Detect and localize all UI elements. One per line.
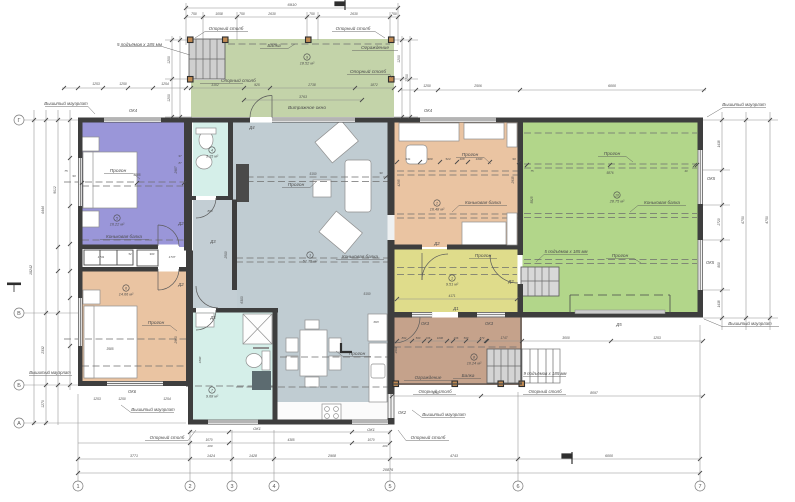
svg-text:524: 524: [445, 157, 450, 161]
svg-text:5 подъёмов x 185 мм: 5 подъёмов x 185 мм: [117, 42, 163, 47]
svg-text:6444: 6444: [41, 206, 45, 214]
svg-text:ОК6: ОК6: [128, 389, 137, 394]
svg-text:3: 3: [230, 484, 233, 490]
svg-text:Балка: Балка: [462, 373, 475, 378]
svg-text:8: 8: [473, 355, 475, 359]
svg-text:ОК1: ОК1: [367, 427, 375, 432]
svg-text:52: 52: [128, 252, 132, 256]
svg-text:Д3: Д3: [209, 239, 216, 244]
svg-text:Вышитый мауэрлат: Вышитый мауэрлат: [29, 370, 71, 375]
svg-text:51.75 м²: 51.75 м²: [303, 260, 318, 264]
svg-text:10.24 м²: 10.24 м²: [467, 362, 482, 366]
svg-text:Прогон: Прогон: [288, 182, 305, 188]
svg-text:925: 925: [254, 83, 260, 87]
svg-text:206: 206: [453, 336, 459, 340]
svg-text:1070: 1070: [205, 438, 212, 442]
svg-text:10: 10: [615, 193, 619, 197]
svg-text:1731: 1731: [98, 255, 105, 259]
svg-text:Д5: Д5: [615, 322, 622, 327]
svg-text:2987: 2987: [174, 166, 178, 174]
svg-text:1200: 1200: [167, 94, 171, 102]
svg-text:ОК2: ОК2: [398, 410, 407, 415]
svg-text:Ограждение: Ограждение: [415, 375, 442, 380]
svg-text:2: 2: [188, 484, 191, 490]
svg-text:3.15 м²: 3.15 м²: [206, 155, 219, 159]
svg-text:1250: 1250: [118, 397, 126, 401]
svg-text:1250: 1250: [119, 82, 127, 86]
svg-text:Опорный столб: Опорный столб: [221, 77, 256, 83]
svg-text:Коньковая балка: Коньковая балка: [465, 200, 501, 205]
svg-text:1253: 1253: [93, 397, 101, 401]
svg-text:7: 7: [698, 484, 701, 490]
svg-text:Коньковая балка: Коньковая балка: [644, 200, 680, 205]
svg-text:941: 941: [405, 157, 410, 161]
svg-text:4: 4: [272, 484, 275, 490]
svg-text:1200: 1200: [167, 56, 171, 64]
svg-text:6303: 6303: [240, 296, 244, 303]
svg-text:9: 9: [306, 55, 308, 59]
svg-text:200: 200: [381, 444, 387, 448]
svg-text:1254: 1254: [161, 82, 169, 86]
svg-text:750: 750: [309, 12, 315, 16]
svg-text:500: 500: [464, 336, 469, 340]
svg-text:Прогон: Прогон: [604, 151, 621, 157]
svg-text:В: В: [17, 311, 21, 317]
svg-text:2902: 2902: [394, 346, 398, 354]
svg-text:Опорный столб: Опорный столб: [150, 434, 185, 440]
svg-text:Опорный столб: Опорный столб: [411, 434, 446, 440]
svg-text:Коньковая балка: Коньковая балка: [106, 234, 142, 239]
svg-text:3: 3: [309, 253, 311, 257]
svg-text:97: 97: [178, 154, 182, 158]
svg-text:75: 75: [64, 169, 68, 173]
svg-text:873: 873: [480, 336, 485, 340]
svg-text:800: 800: [717, 262, 721, 268]
svg-text:4171: 4171: [448, 294, 455, 298]
svg-text:1253: 1253: [92, 82, 100, 86]
svg-text:3763: 3763: [299, 95, 307, 99]
svg-text:5: 5: [116, 216, 118, 220]
svg-text:2630: 2630: [349, 12, 358, 16]
svg-text:Прогон: Прогон: [110, 168, 127, 174]
svg-text:1: 1: [451, 276, 453, 280]
svg-text:Опорный столб: Опорный столб: [336, 25, 371, 31]
svg-text:4385: 4385: [287, 438, 294, 442]
svg-text:750: 750: [391, 12, 397, 16]
svg-text:1438: 1438: [717, 140, 721, 147]
svg-text:ОК3: ОК3: [421, 321, 430, 326]
svg-text:2630: 2630: [267, 12, 276, 16]
svg-text:2720: 2720: [717, 218, 721, 226]
svg-text:Вышитый мауэрлат: Вышитый мауэрлат: [422, 412, 466, 417]
svg-text:2935: 2935: [511, 176, 515, 184]
svg-text:6000: 6000: [608, 84, 616, 88]
svg-text:206: 206: [425, 336, 431, 340]
svg-text:Прогон: Прогон: [612, 253, 629, 259]
svg-text:75: 75: [244, 171, 248, 175]
svg-text:Д2: Д2: [507, 279, 514, 284]
svg-text:99: 99: [379, 171, 383, 175]
svg-text:16.22 м²: 16.22 м²: [110, 223, 125, 227]
svg-text:4: 4: [211, 148, 213, 152]
svg-text:900: 900: [150, 252, 155, 256]
svg-text:5 подъёмов x 185 мм: 5 подъёмов x 185 мм: [544, 249, 587, 254]
svg-text:1: 1: [76, 484, 79, 490]
svg-text:2908: 2908: [327, 454, 336, 458]
svg-text:1200: 1200: [397, 55, 401, 63]
svg-text:1800: 1800: [198, 356, 202, 363]
svg-text:Коньковая балка: Коньковая балка: [342, 254, 378, 259]
svg-text:1253: 1253: [653, 336, 661, 340]
svg-text:1058: 1058: [215, 12, 223, 16]
svg-text:1250: 1250: [423, 84, 431, 88]
svg-text:6750: 6750: [741, 216, 745, 224]
svg-text:3000: 3000: [562, 336, 570, 340]
svg-text:750: 750: [191, 12, 197, 16]
svg-text:5: 5: [388, 484, 391, 490]
svg-text:1424: 1424: [207, 454, 215, 458]
svg-text:1270: 1270: [41, 400, 45, 408]
svg-text:5150: 5150: [363, 292, 370, 296]
svg-text:49: 49: [684, 169, 688, 173]
svg-text:3771: 3771: [130, 454, 138, 458]
svg-text:3585: 3585: [106, 347, 113, 351]
svg-text:500: 500: [416, 336, 421, 340]
svg-text:2700: 2700: [405, 74, 409, 83]
svg-text:1254: 1254: [163, 397, 171, 401]
svg-text:Балка: Балка: [267, 43, 281, 49]
svg-text:ОК3: ОК3: [485, 321, 494, 326]
svg-text:ОК4: ОК4: [424, 108, 433, 113]
svg-text:18.52 м²: 18.52 м²: [300, 62, 315, 66]
svg-text:2332: 2332: [41, 346, 45, 355]
svg-text:20876: 20876: [382, 468, 394, 472]
svg-text:1737: 1737: [169, 255, 176, 259]
svg-text:14.66 м²: 14.66 м²: [119, 293, 134, 297]
svg-text:Прогон: Прогон: [475, 253, 492, 259]
svg-text:1070: 1070: [367, 438, 374, 442]
svg-text:6910: 6910: [288, 2, 298, 7]
svg-text:800: 800: [207, 209, 212, 213]
svg-text:9 подъёмов x 185 мм: 9 подъёмов x 185 мм: [523, 371, 566, 376]
svg-text:2738: 2738: [307, 83, 316, 87]
svg-text:Опорный столб: Опорный столб: [350, 68, 386, 75]
svg-text:Прогон: Прогон: [148, 320, 165, 326]
svg-text:Д2: Д2: [177, 282, 184, 287]
svg-text:9.68 м²: 9.68 м²: [206, 395, 219, 399]
svg-text:10242: 10242: [29, 265, 33, 275]
svg-text:Вышитый мауэрлат: Вышитый мауэрлат: [44, 101, 88, 106]
svg-text:хол: хол: [372, 320, 378, 324]
svg-text:5150: 5150: [309, 172, 316, 176]
svg-text:99: 99: [72, 174, 76, 178]
svg-text:9.51 м²: 9.51 м²: [446, 283, 459, 287]
svg-text:900: 900: [427, 157, 432, 161]
svg-text:Ограждение: Ограждение: [361, 45, 389, 51]
svg-text:87: 87: [178, 161, 182, 165]
svg-text:Вышитый мауэрлат: Вышитый мауэрлат: [131, 407, 175, 412]
svg-text:Опорный столб: Опорный столб: [528, 389, 562, 394]
svg-text:4750: 4750: [765, 216, 769, 224]
svg-text:Д3: Д3: [209, 315, 216, 320]
svg-text:Г: Г: [18, 118, 21, 124]
svg-text:1872: 1872: [370, 83, 378, 87]
svg-text:2506: 2506: [473, 84, 482, 88]
svg-text:ОК5: ОК5: [707, 176, 716, 181]
svg-text:750: 750: [239, 12, 245, 16]
svg-text:4295: 4295: [397, 179, 401, 186]
svg-text:1747: 1747: [500, 336, 507, 340]
svg-text:Витражное окно: Витражное окно: [288, 105, 326, 111]
svg-text:Вышитый мауэрлат: Вышитый мауэрлат: [728, 321, 772, 326]
svg-text:ОК1: ОК1: [253, 426, 261, 431]
svg-text:6: 6: [516, 484, 519, 490]
svg-text:862: 862: [402, 336, 407, 340]
svg-text:Опорный столб: Опорный столб: [209, 25, 244, 31]
svg-text:4743: 4743: [450, 454, 458, 458]
svg-text:ОК5: ОК5: [706, 260, 715, 265]
svg-text:Д4: Д4: [248, 125, 255, 130]
svg-text:А: А: [17, 421, 21, 427]
svg-text:8097: 8097: [590, 391, 598, 395]
svg-text:9012: 9012: [53, 186, 57, 194]
svg-text:6: 6: [125, 286, 127, 290]
svg-text:200: 200: [206, 444, 212, 448]
svg-text:2: 2: [435, 201, 438, 205]
svg-text:1428: 1428: [249, 454, 257, 458]
svg-text:Вышитый мауэрлат: Вышитый мауэрлат: [722, 102, 766, 107]
svg-text:75: 75: [530, 169, 534, 173]
svg-text:Д2: Д2: [433, 241, 440, 246]
svg-text:5825: 5825: [530, 196, 534, 203]
svg-text:ОК4: ОК4: [129, 108, 138, 113]
svg-text:Д1: Д1: [452, 306, 459, 311]
svg-text:Б: Б: [17, 383, 21, 389]
svg-text:99: 99: [512, 157, 516, 161]
svg-text:2963: 2963: [174, 336, 178, 344]
svg-text:2500: 2500: [224, 251, 228, 259]
svg-text:1000: 1000: [437, 336, 444, 340]
svg-text:16.48 м²: 16.48 м²: [430, 208, 445, 212]
svg-text:5876: 5876: [606, 171, 613, 175]
svg-text:28.75 м²: 28.75 м²: [609, 200, 625, 204]
svg-text:1438: 1438: [717, 300, 721, 307]
svg-text:6000: 6000: [605, 454, 613, 458]
svg-text:Д2: Д2: [177, 221, 184, 226]
